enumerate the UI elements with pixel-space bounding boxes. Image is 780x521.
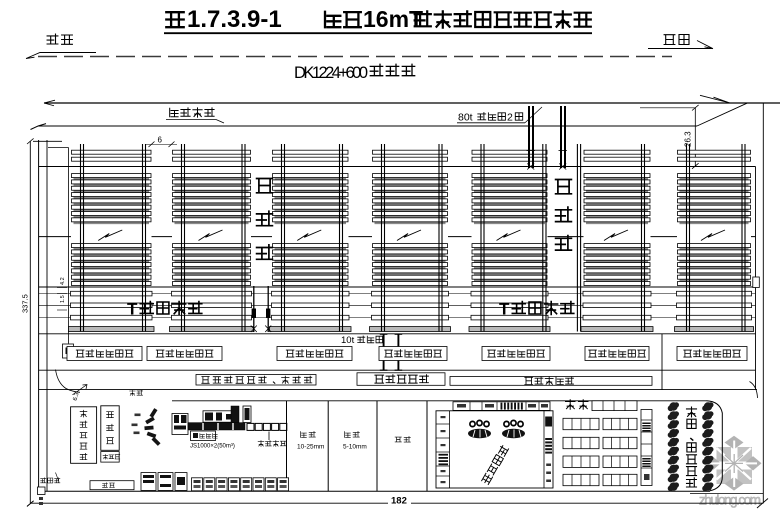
svg-text:1.7.3.9-1: 1.7.3.9-1 bbox=[187, 6, 282, 33]
svg-text:2: 2 bbox=[507, 112, 513, 124]
svg-text:T: T bbox=[127, 300, 138, 319]
svg-text:4.2: 4.2 bbox=[60, 277, 66, 285]
svg-text:10-25mm: 10-25mm bbox=[297, 444, 324, 451]
svg-text:26.3: 26.3 bbox=[684, 131, 693, 147]
svg-text:1.5: 1.5 bbox=[60, 295, 66, 303]
svg-text:zhulong.com: zhulong.com bbox=[699, 493, 761, 508]
svg-text:16mT: 16mT bbox=[363, 6, 423, 32]
svg-text:T: T bbox=[499, 300, 510, 319]
svg-text:6: 6 bbox=[158, 136, 163, 145]
svg-text:10t: 10t bbox=[341, 335, 355, 346]
svg-text:337.5: 337.5 bbox=[21, 294, 30, 313]
svg-text:80t: 80t bbox=[458, 112, 473, 124]
svg-text:JS1000×2(50m³): JS1000×2(50m³) bbox=[190, 444, 235, 450]
svg-text:182: 182 bbox=[391, 496, 407, 507]
svg-text:5-10mm: 5-10mm bbox=[343, 444, 367, 451]
svg-text:DK1224+600: DK1224+600 bbox=[294, 64, 368, 82]
